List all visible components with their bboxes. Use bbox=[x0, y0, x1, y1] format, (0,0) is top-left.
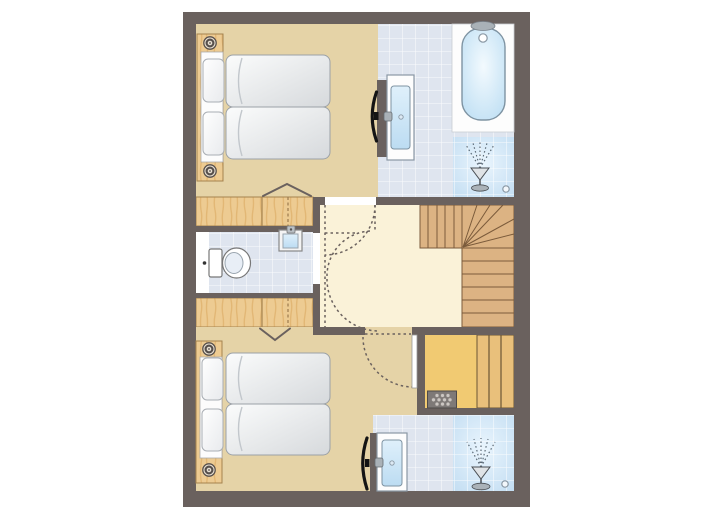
pillow bbox=[202, 358, 223, 400]
drain-icon bbox=[479, 34, 487, 42]
wall-sauna-left bbox=[417, 335, 425, 408]
headboard-knob-icon bbox=[203, 464, 215, 476]
bathtub bbox=[452, 22, 514, 133]
wardrobe-top bbox=[196, 197, 313, 226]
opening-toilet-door bbox=[313, 233, 320, 284]
shower-top bbox=[453, 137, 514, 197]
opening-bathroom-door bbox=[325, 197, 376, 205]
basin-tap-icon bbox=[375, 458, 383, 467]
mattress bbox=[226, 55, 330, 107]
flush-button-icon bbox=[203, 261, 207, 265]
door-leaf bbox=[412, 335, 417, 388]
wall-hall-bottom-left bbox=[313, 327, 365, 335]
floor-plan bbox=[0, 0, 713, 519]
washbasin-top bbox=[384, 75, 414, 160]
double-bed-top bbox=[197, 34, 330, 181]
headboard-knob-icon bbox=[204, 165, 216, 177]
pillow bbox=[203, 59, 224, 102]
basin-tap-icon bbox=[384, 112, 392, 121]
wall-sauna-bottom bbox=[417, 408, 514, 415]
washbasin-bottom bbox=[375, 433, 407, 491]
sauna-bench bbox=[477, 335, 514, 408]
floor-plan-page bbox=[0, 0, 713, 519]
wall-hall-bottom-right bbox=[412, 327, 514, 335]
wardrobe-bottom bbox=[196, 298, 313, 327]
headboard-knob-icon bbox=[203, 343, 215, 355]
drain-icon bbox=[399, 115, 403, 119]
mattress bbox=[226, 107, 330, 159]
headboard-knob-icon bbox=[204, 37, 216, 49]
drain-icon bbox=[502, 481, 508, 487]
drain-icon bbox=[390, 461, 394, 465]
pillow bbox=[202, 409, 223, 451]
drain-icon bbox=[503, 186, 509, 192]
hand-basin-icon bbox=[279, 226, 302, 251]
sauna-heater-icon bbox=[428, 391, 457, 408]
wall-toilet-bottom bbox=[196, 293, 313, 298]
shower-bottom bbox=[453, 415, 514, 491]
bath-tap-icon bbox=[471, 22, 495, 31]
toilet-icon bbox=[203, 248, 251, 278]
pillow bbox=[203, 112, 224, 155]
